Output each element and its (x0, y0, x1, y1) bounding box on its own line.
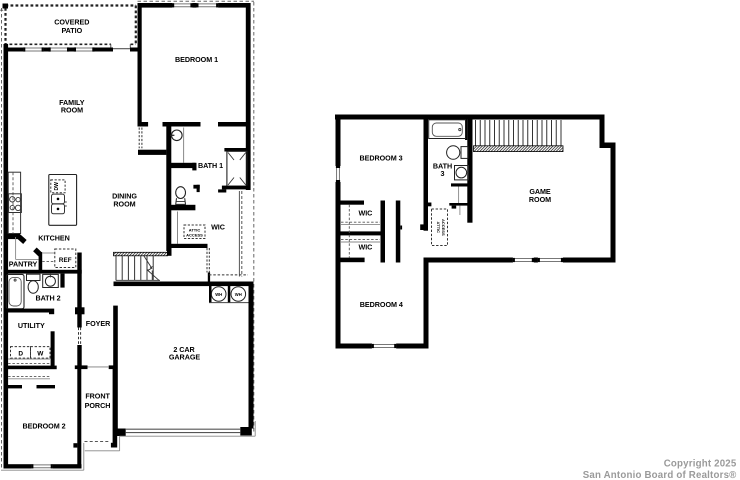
svg-text:GARAGE: GARAGE (169, 353, 201, 362)
svg-text:BATH 1: BATH 1 (198, 161, 223, 170)
svg-text:WIC: WIC (358, 242, 372, 251)
svg-text:PORCH: PORCH (85, 401, 111, 410)
svg-text:BEDROOM 2: BEDROOM 2 (22, 421, 65, 430)
svg-text:W: W (37, 350, 44, 357)
svg-text:ROOM: ROOM (113, 199, 135, 208)
svg-text:DW: DW (54, 182, 60, 191)
svg-text:WH: WH (215, 292, 222, 297)
svg-text:BEDROOM 4: BEDROOM 4 (360, 300, 403, 309)
svg-text:FRONT: FRONT (85, 392, 110, 401)
svg-text:3: 3 (441, 169, 445, 178)
svg-text:UTILITY: UTILITY (18, 321, 45, 330)
svg-text:PANTRY: PANTRY (9, 260, 38, 269)
svg-text:San Antonio Board of Realtors®: San Antonio Board of Realtors® (583, 470, 737, 480)
svg-text:KITCHEN: KITCHEN (38, 233, 70, 242)
svg-text:Copyright 2025: Copyright 2025 (664, 458, 737, 469)
svg-text:REF: REF (59, 257, 72, 264)
svg-text:ROOM: ROOM (529, 195, 551, 204)
svg-text:WIC: WIC (211, 223, 225, 232)
svg-text:WH: WH (235, 292, 242, 297)
svg-text:BATH 2: BATH 2 (35, 294, 60, 303)
svg-text:PATIO: PATIO (61, 26, 82, 35)
svg-text:ATTIC: ATTIC (436, 222, 441, 234)
svg-text:ROOM: ROOM (61, 106, 83, 115)
svg-text:WIC: WIC (358, 209, 372, 218)
svg-text:ACCESS: ACCESS (441, 219, 446, 236)
svg-text:BEDROOM 3: BEDROOM 3 (359, 154, 402, 163)
svg-text:FOYER: FOYER (86, 319, 111, 328)
svg-text:BEDROOM 1: BEDROOM 1 (175, 55, 218, 64)
svg-text:ACCESS: ACCESS (186, 232, 203, 237)
svg-text:D: D (18, 350, 23, 357)
